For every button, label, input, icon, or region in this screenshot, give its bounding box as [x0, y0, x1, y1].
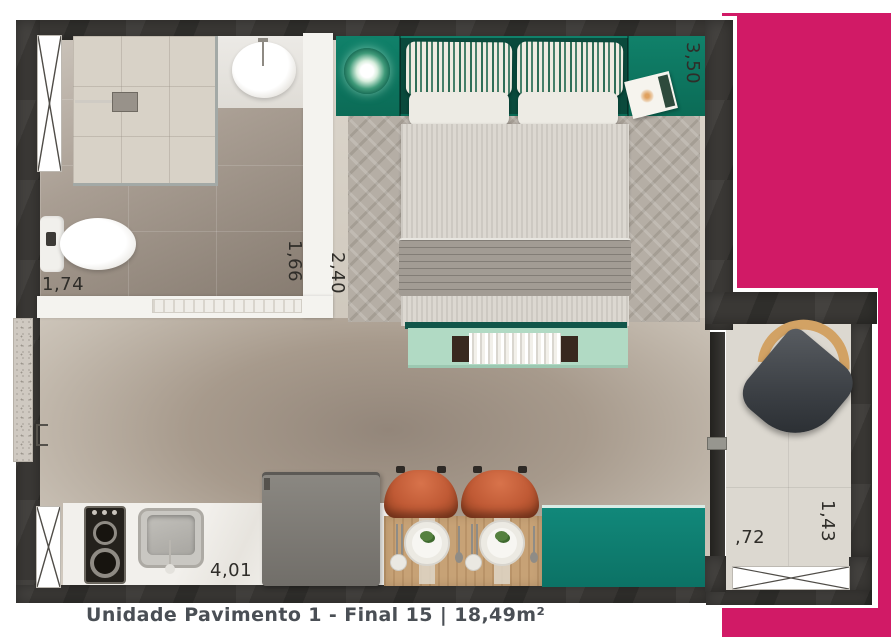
wall-balcony-bottom [706, 590, 872, 605]
plate-garnish [420, 531, 433, 541]
window-x-symbol [732, 566, 850, 590]
plate [404, 520, 450, 566]
cooktop-burner [93, 521, 117, 545]
pillow [409, 92, 509, 126]
dimension-label-bedroom-width: 2,40 [327, 252, 348, 294]
dimension-label-bathroom-width: 1,74 [42, 274, 84, 295]
bookend [452, 336, 469, 362]
cooktop-burner [90, 548, 120, 578]
wall-balcony-stub [705, 556, 726, 592]
cooktop-knob [102, 510, 107, 515]
shower-area [73, 36, 218, 186]
headboard-seam [399, 36, 401, 116]
unit-caption: Unidade Pavimento 1 - Final 15 | 18,49m² [86, 604, 545, 626]
window-x-symbol [37, 35, 62, 172]
fork [471, 524, 473, 558]
sliding-door-frame [710, 332, 725, 443]
window-x-symbol [36, 506, 61, 588]
spoon [455, 552, 463, 563]
floor-plan-card: 1,74 1,66 2,40 3,50 4,01 ,72 1,43 Unidad… [0, 0, 891, 637]
dimension-label-bathroom-depth: 1,66 [284, 240, 305, 282]
bathroom-sliding-door [152, 299, 302, 313]
entry-door-symbol [13, 318, 33, 462]
small-bowl [465, 554, 482, 571]
spoon [530, 552, 538, 563]
dimension-label-balcony-depth: 1,43 [817, 500, 838, 542]
bedside-lamp [344, 48, 390, 94]
sliding-door-handle [707, 437, 727, 450]
bookend [561, 336, 578, 362]
pillow [517, 42, 623, 97]
toilet [60, 218, 136, 270]
dimension-label-balcony-width: ,72 [735, 527, 765, 548]
bathroom-sink [232, 42, 296, 98]
toilet-flush-button [46, 232, 56, 246]
fork [476, 524, 478, 558]
teal-cabinet [542, 505, 705, 587]
pillow [406, 42, 512, 97]
refrigerator [262, 472, 380, 586]
fork [401, 524, 403, 558]
dimension-label-kitchen-length: 4,01 [210, 560, 252, 581]
cooktop-knob [92, 510, 97, 515]
dimension-label-bedroom-depth: 3,50 [682, 42, 703, 84]
cooktop-knob [112, 510, 117, 515]
shower-head [112, 92, 138, 112]
sliding-door-frame [710, 447, 725, 556]
plate [479, 520, 525, 566]
plate-garnish [495, 531, 508, 541]
bathroom-faucet [262, 40, 264, 66]
bed-blanket [399, 238, 631, 296]
door-swing-mark [36, 424, 48, 446]
shower-arm [75, 100, 112, 103]
kitchen-faucet [165, 564, 175, 574]
refrigerator-hinge [264, 478, 270, 490]
wall-right-bedroom [705, 20, 733, 330]
wall-bottom [16, 585, 710, 603]
wall-balcony-corner [849, 557, 872, 593]
book-row [469, 333, 561, 364]
fork [396, 524, 398, 558]
small-bowl [390, 554, 407, 571]
bathroom-faucet [258, 38, 268, 42]
pillow [518, 92, 618, 126]
balcony-tile-seam [726, 487, 851, 488]
bed-duvet [401, 124, 629, 238]
kitchen-sink-basin [147, 515, 195, 555]
